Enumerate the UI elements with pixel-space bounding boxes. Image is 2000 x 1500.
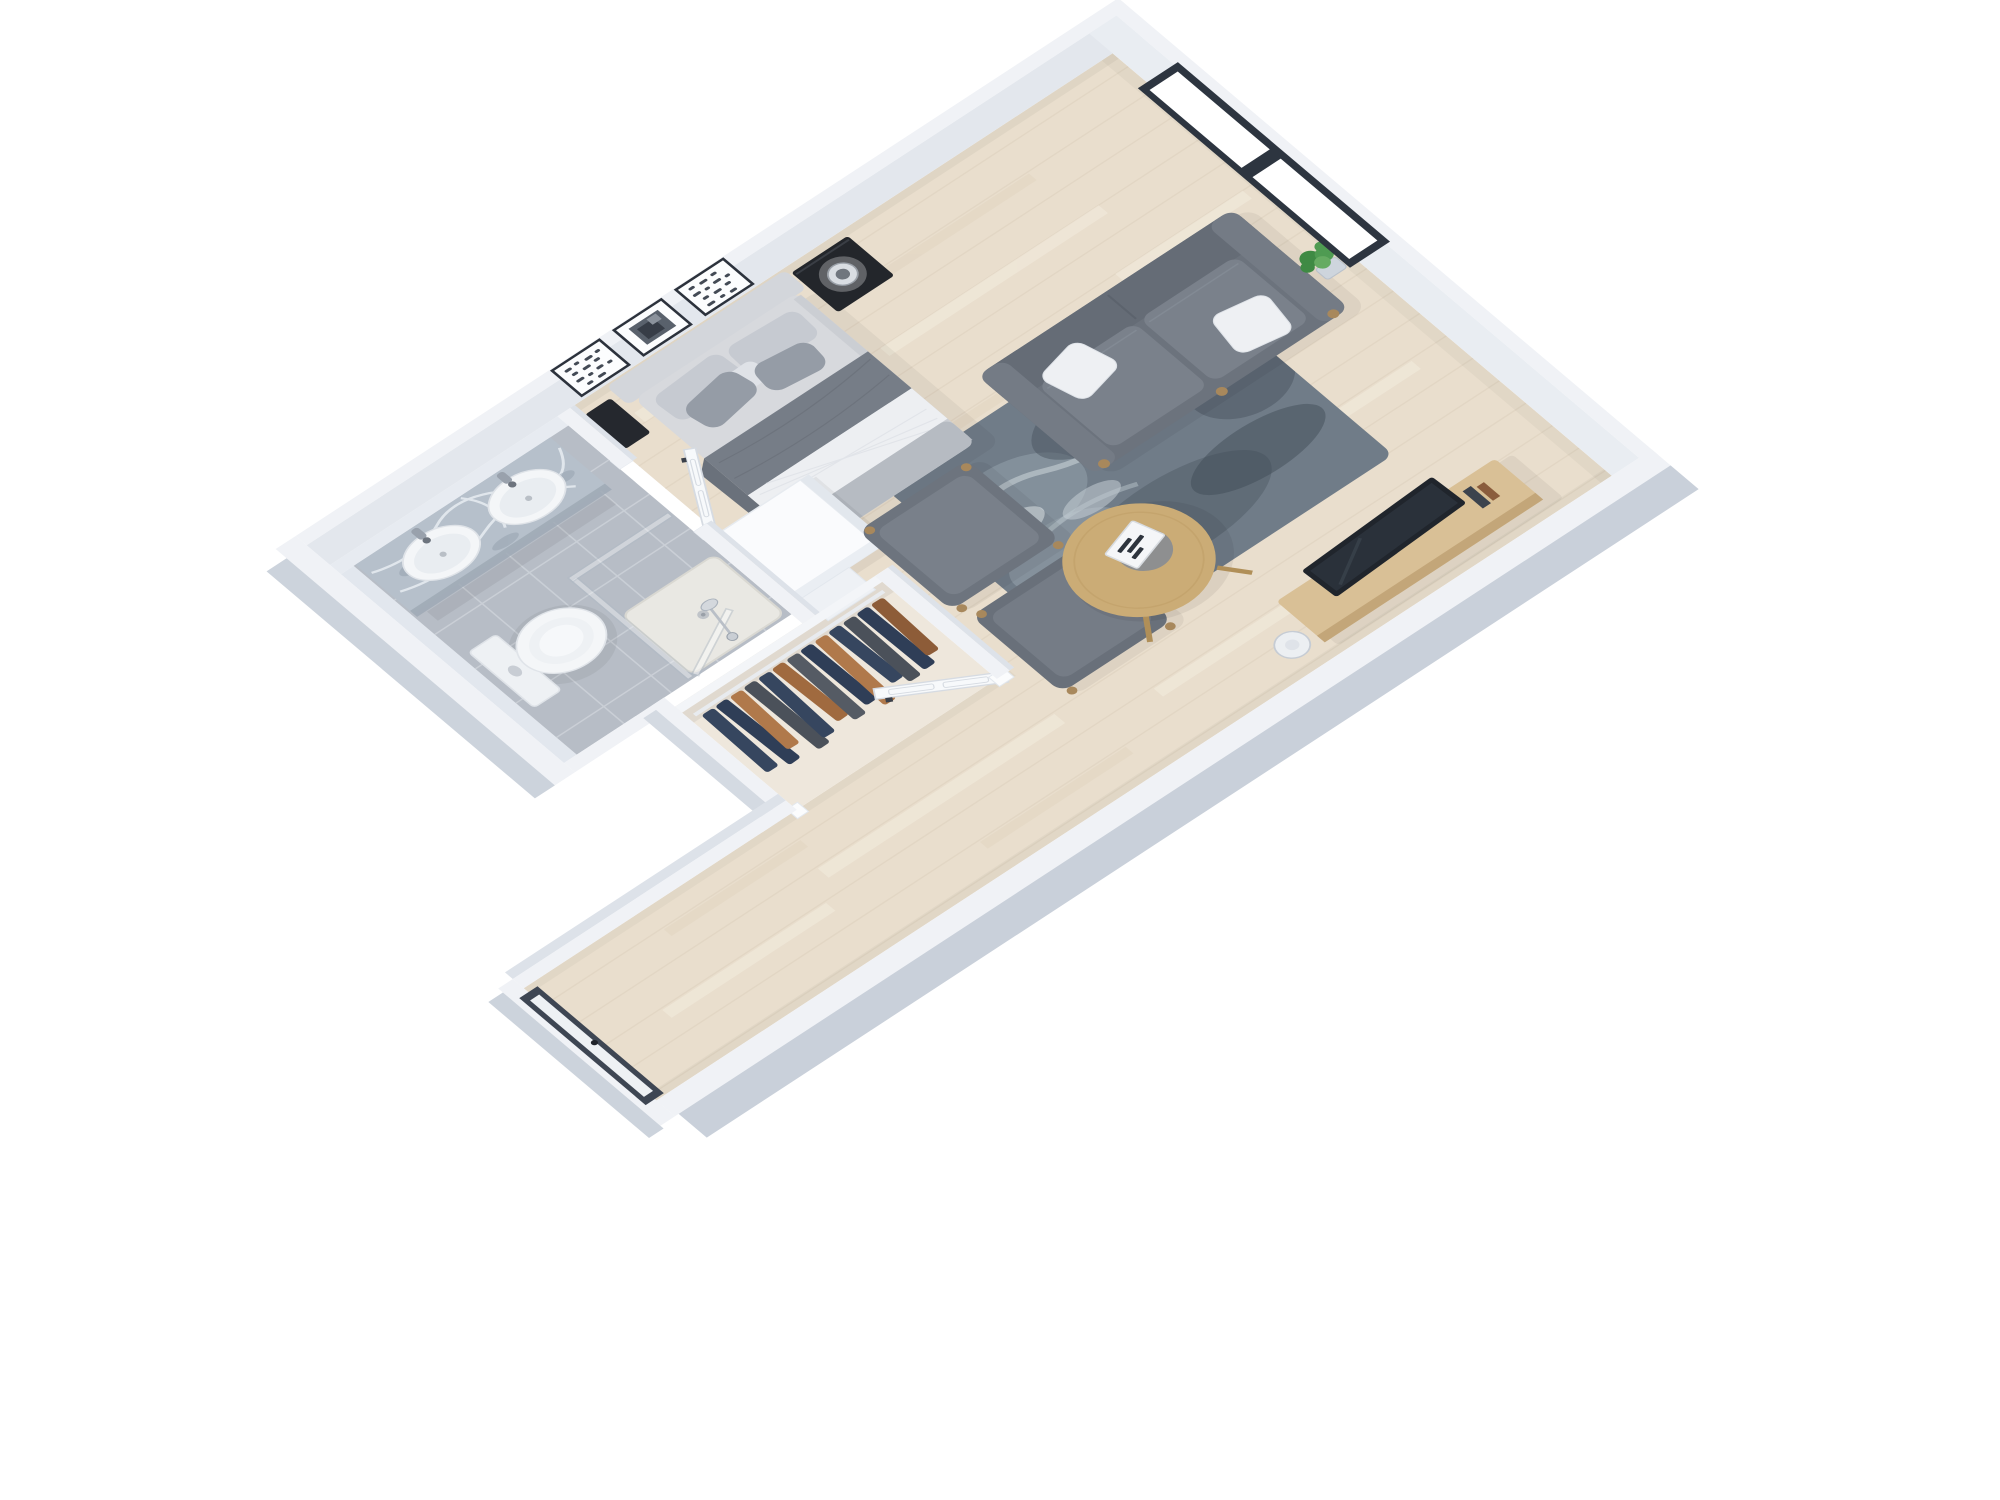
door-handle bbox=[885, 697, 893, 702]
floorplan-render bbox=[0, 0, 2000, 1500]
floorplan-svg bbox=[0, 0, 2000, 1500]
